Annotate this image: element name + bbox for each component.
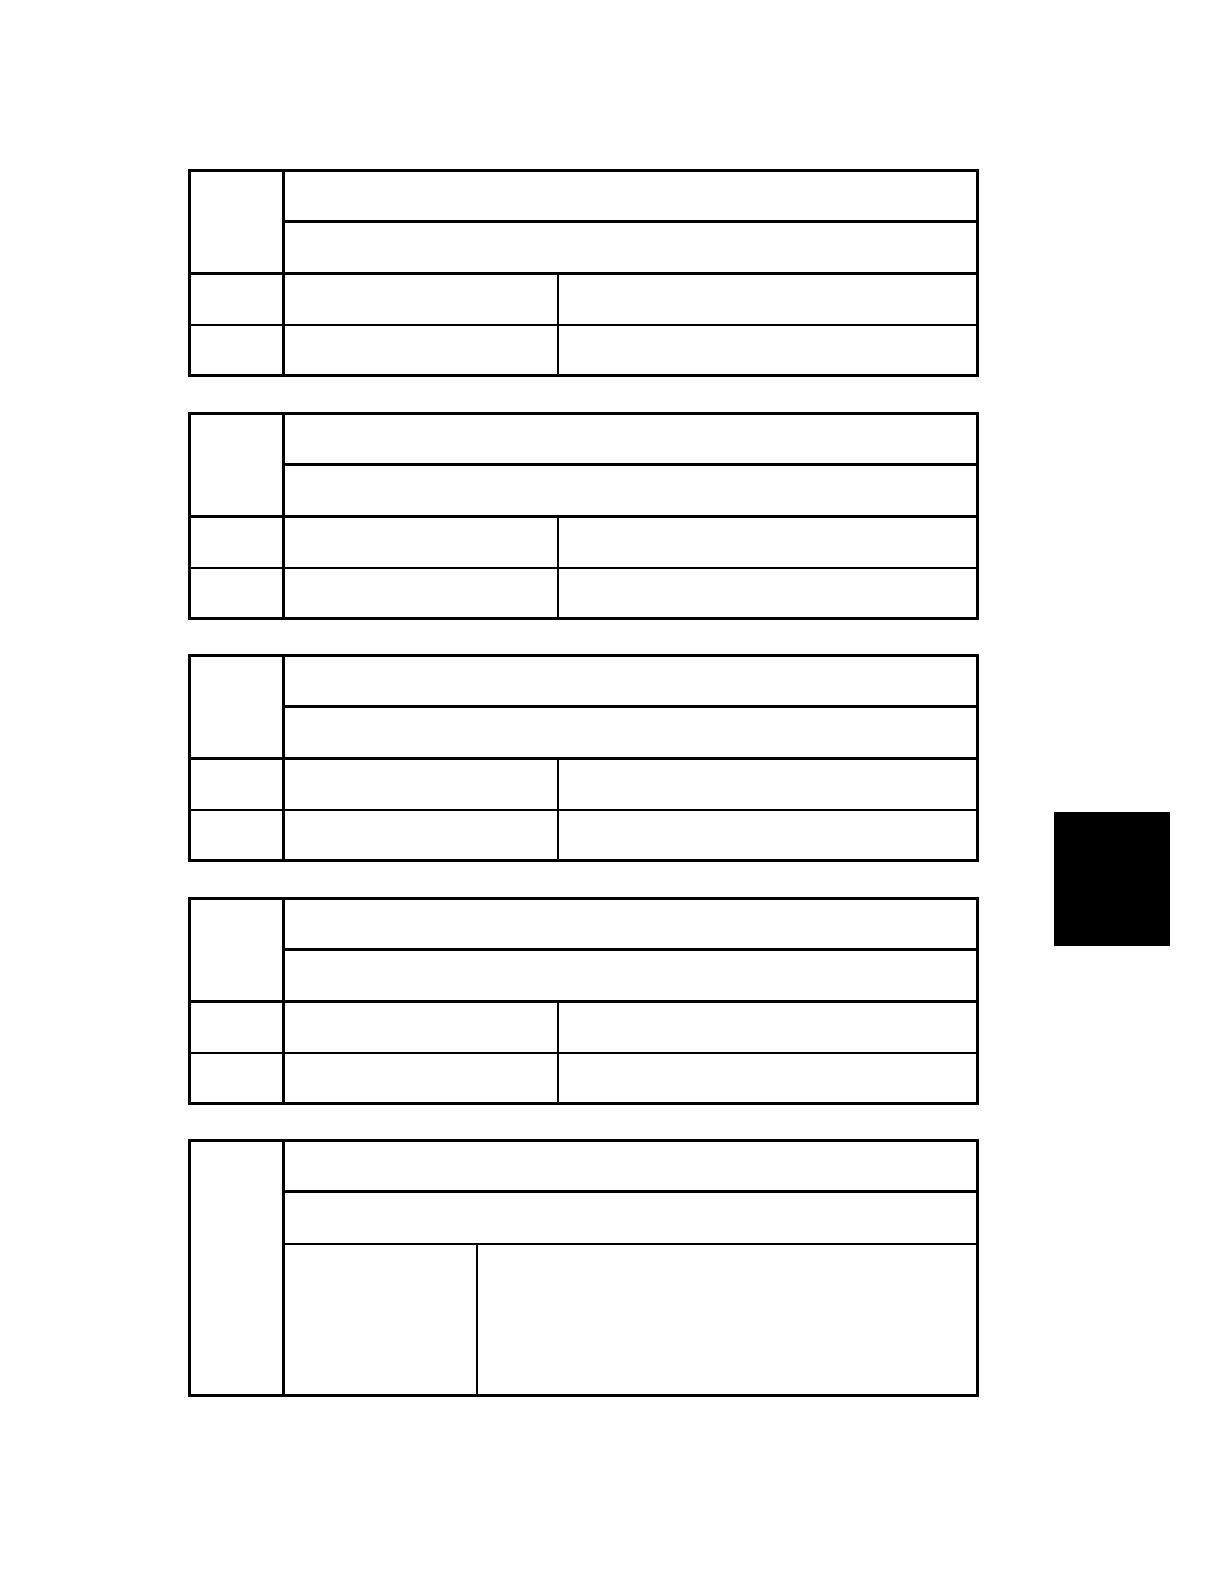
table-cell-row4-label bbox=[191, 326, 285, 374]
table-cell-label bbox=[191, 657, 285, 760]
table-cell-header-1 bbox=[285, 415, 976, 466]
table-cell-header-2 bbox=[285, 466, 976, 518]
spec-table-4 bbox=[188, 897, 979, 1105]
table-cell-label bbox=[191, 415, 285, 518]
table-cell-row4-right bbox=[559, 569, 976, 617]
table-cell-header-2 bbox=[285, 708, 976, 760]
table-cell-label bbox=[191, 900, 285, 1003]
document-page bbox=[0, 0, 1224, 1584]
table-cell-row3-right bbox=[559, 760, 976, 811]
table-cell-row4-mid bbox=[285, 569, 559, 617]
table-cell-row3-mid bbox=[285, 518, 559, 569]
table-cell-row4-right bbox=[559, 1054, 976, 1102]
table-cell-row4-mid bbox=[285, 326, 559, 374]
table-cell-label bbox=[191, 172, 285, 275]
table-cell-row4-right bbox=[559, 811, 976, 859]
table-cell-header-1 bbox=[285, 900, 976, 951]
table-cell-row3-right bbox=[559, 518, 976, 569]
spec-table-1 bbox=[188, 169, 979, 377]
table-cell-row3-right bbox=[478, 1245, 976, 1394]
spec-table-3 bbox=[188, 654, 979, 862]
spec-table-5 bbox=[188, 1139, 979, 1397]
table-cell-row4-label bbox=[191, 569, 285, 617]
footer-link[interactable] bbox=[127, 1572, 270, 1584]
table-cell-header-2 bbox=[285, 951, 976, 1003]
table-cell-row4-mid bbox=[285, 1054, 559, 1102]
table-cell-row3-label bbox=[191, 760, 285, 811]
table-cell-header-1 bbox=[285, 172, 976, 223]
table-cell-row3-right bbox=[559, 1003, 976, 1054]
table-cell-row3-label bbox=[191, 518, 285, 569]
table-cell-header-2 bbox=[285, 223, 976, 275]
table-cell-label bbox=[191, 1142, 285, 1394]
table-cell-row4-label bbox=[191, 811, 285, 859]
table-cell-row4-right bbox=[559, 326, 976, 374]
table-cell-header-1 bbox=[285, 657, 976, 708]
table-cell-header-1 bbox=[285, 1142, 976, 1193]
table-cell-row4-mid bbox=[285, 811, 559, 859]
table-cell-row3-mid bbox=[285, 760, 559, 811]
spec-table-2 bbox=[188, 412, 979, 620]
table-cell-row4-label bbox=[191, 1054, 285, 1102]
table-cell-row3-mid bbox=[285, 1003, 559, 1054]
thumb-index-marker bbox=[1054, 812, 1170, 946]
table-cell-row3-right bbox=[559, 275, 976, 326]
table-cell-row3-label bbox=[191, 1003, 285, 1054]
table-cell-row3-label bbox=[191, 275, 285, 326]
table-cell-header-2 bbox=[285, 1193, 976, 1245]
table-cell-row3-mid bbox=[285, 275, 559, 326]
table-cell-row3-left bbox=[285, 1245, 478, 1394]
